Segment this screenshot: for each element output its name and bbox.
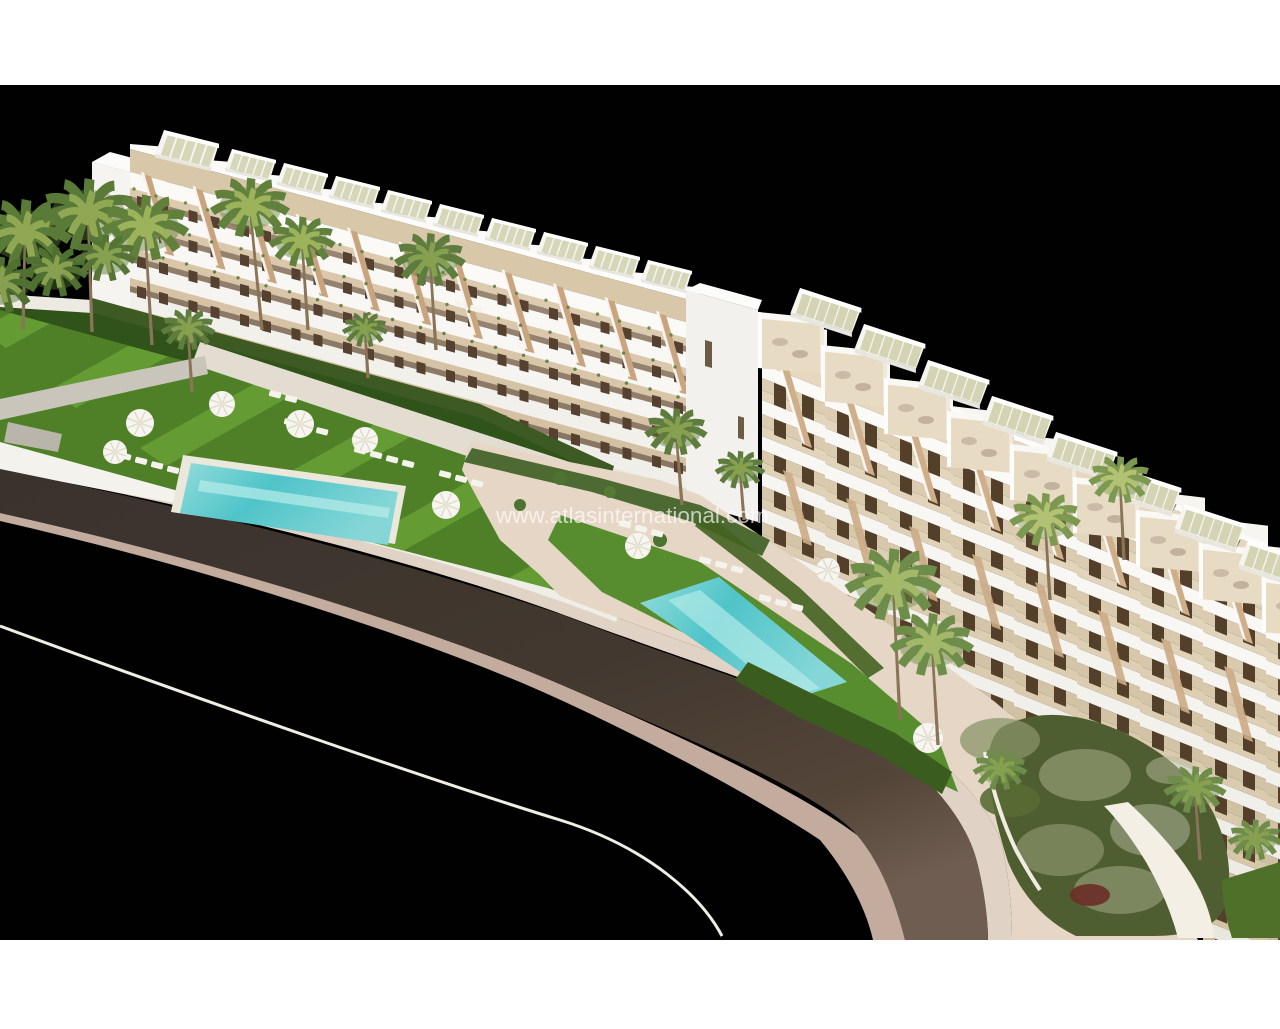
svg-text:www.atlasinternational.com: www.atlasinternational.com [495,503,769,528]
